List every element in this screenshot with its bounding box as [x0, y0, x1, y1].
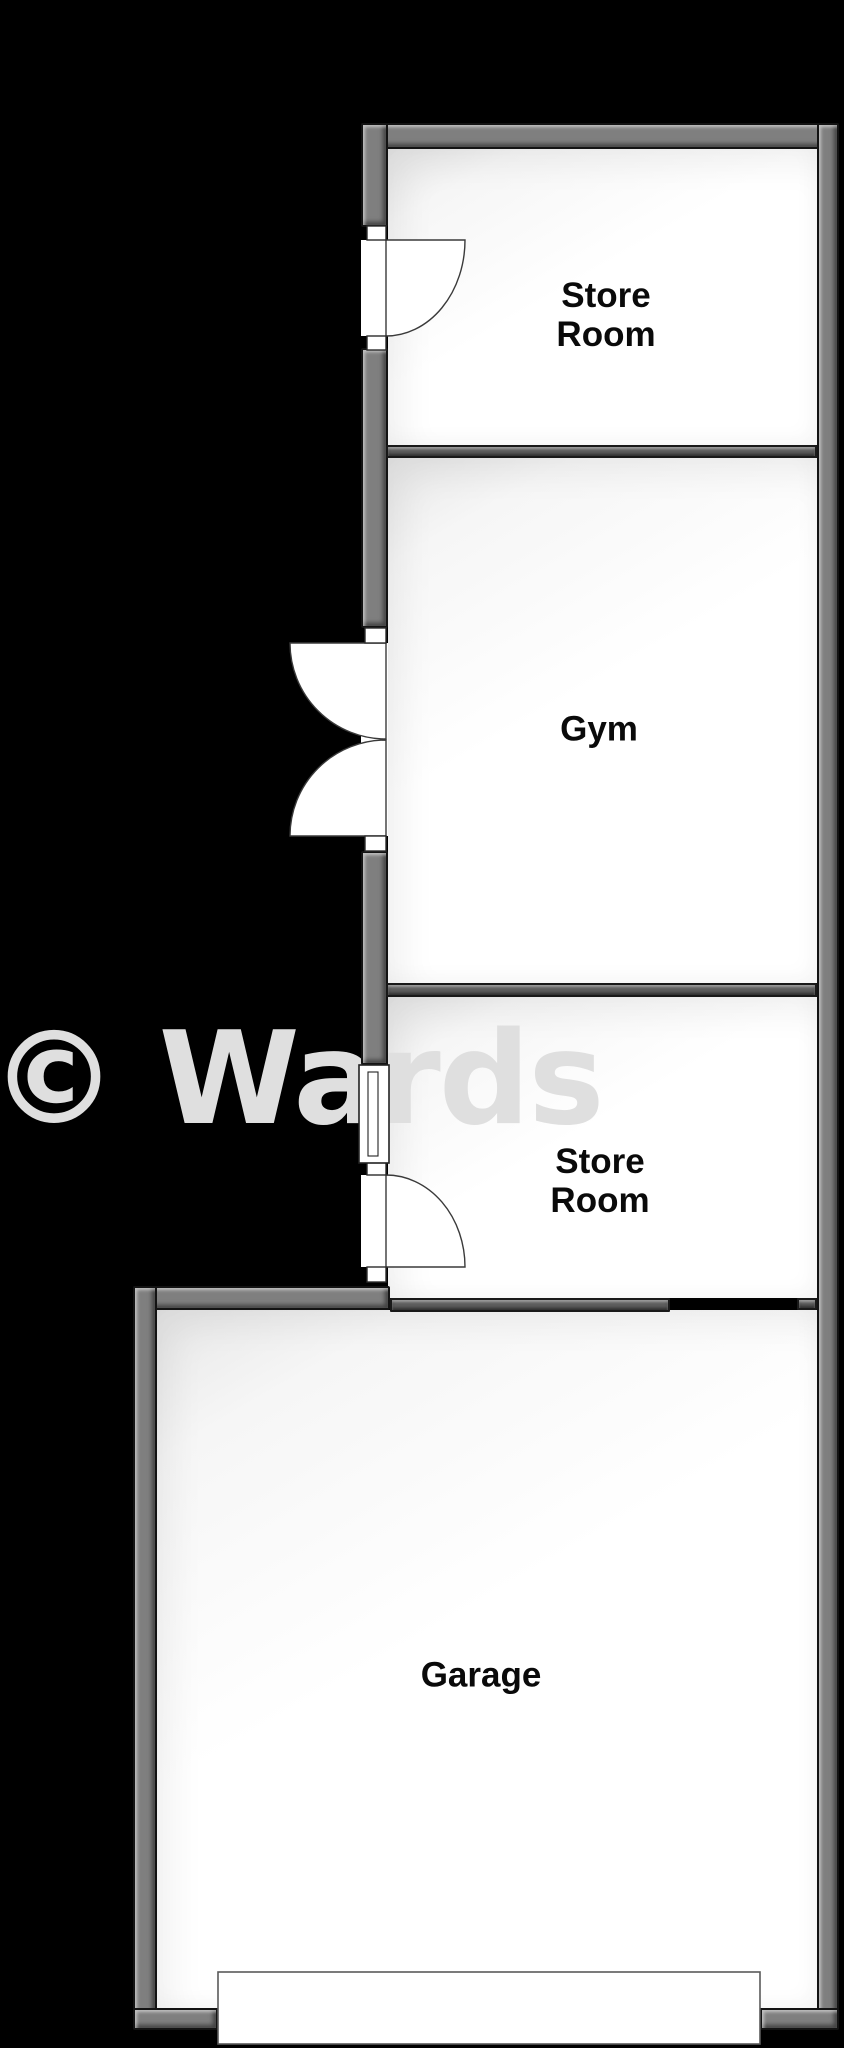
jamb-storeroom1-top: [367, 226, 386, 240]
jamb-storeroom2-bottom: [367, 1267, 386, 1282]
window-inner: [368, 1072, 378, 1156]
store-room-1-label: Store Room: [556, 276, 655, 354]
storeroom1-doorway: [361, 240, 388, 336]
store-room-2-label: Store Room: [550, 1142, 649, 1220]
storeroom2-doorway: [361, 1175, 388, 1267]
garage-door: [218, 1972, 760, 2044]
floorplan-canvas: © Wards Store Room Gym S: [0, 0, 844, 2048]
storeroom1-door-swing: [386, 240, 465, 336]
gym-door-swing-top: [290, 643, 386, 739]
gym-label: Gym: [560, 710, 638, 749]
gym-door-swing-bottom: [290, 740, 386, 836]
jamb-gym-top: [365, 628, 386, 643]
garage-label: Garage: [421, 1656, 542, 1695]
storeroom2-door-swing: [386, 1175, 465, 1267]
floorplan-symbols: [0, 0, 844, 2048]
jamb-gym-bottom: [365, 836, 386, 851]
jamb-storeroom1-bottom: [367, 336, 386, 350]
